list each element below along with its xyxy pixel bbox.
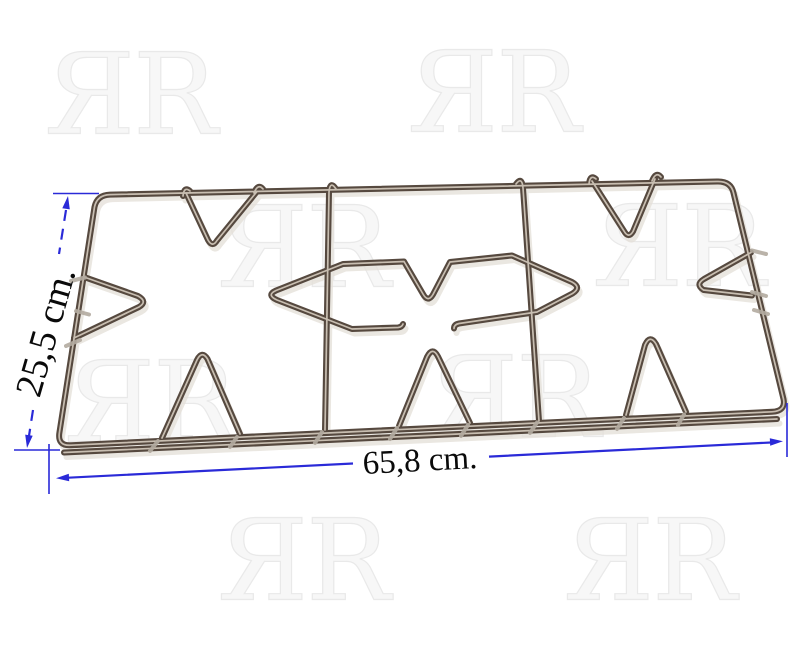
gas-stove-pan-support-photo: 25,5 cm. 65,8 cm. bbox=[0, 0, 800, 667]
arrowhead-left-icon bbox=[56, 474, 69, 482]
pan-support-grate bbox=[59, 175, 786, 457]
side-nub bbox=[752, 251, 766, 255]
arrowhead-down-icon bbox=[25, 435, 33, 448]
arrowhead-right-icon bbox=[770, 438, 783, 446]
product-photo: ЯR ЯR ЯR ЯR ЯR ЯR ЯR ЯR bbox=[0, 0, 800, 667]
width-dimension-label: 65,8 cm. bbox=[362, 440, 478, 482]
arrowhead-up-icon bbox=[62, 196, 70, 209]
grate-wire bbox=[59, 175, 784, 453]
grate-wire-highlight bbox=[59, 175, 784, 453]
